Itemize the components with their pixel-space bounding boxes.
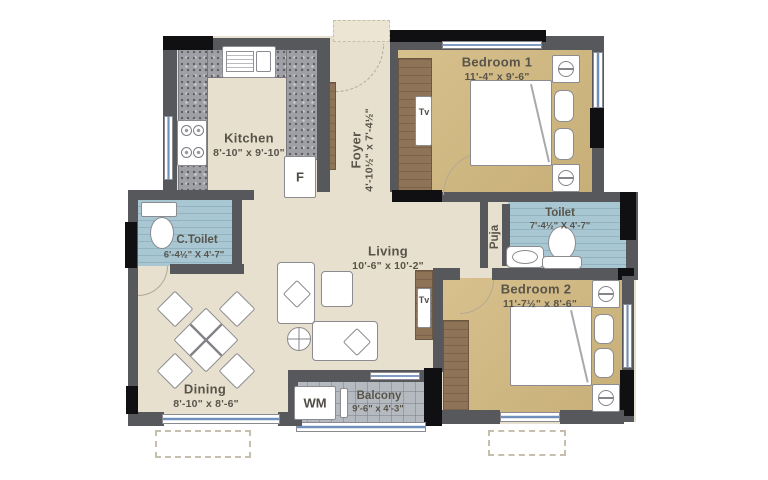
burner-icon: [181, 125, 192, 136]
lamp-icon: [598, 286, 614, 302]
balcony-door-leaf: [340, 388, 348, 418]
bedroom2-nightstand-bottom: [592, 384, 620, 412]
foyer-dims: 4'-10½" x 7'-4½": [364, 108, 376, 192]
dining-bottom-wall-left: [128, 412, 164, 426]
toilet-wc-base: [542, 256, 582, 269]
armchair: [321, 271, 353, 307]
living-bedroom2-wall: [433, 268, 443, 372]
kitchen-label: Kitchen: [224, 131, 274, 146]
kitchen-foyer-wall: [317, 50, 330, 192]
foyer-label-group: Foyer 4'-10½" x 7'-4½": [349, 108, 376, 192]
sofa-cushion: [343, 328, 371, 356]
kitchen-window: [164, 116, 173, 180]
bedroom1-nightstand-bottom: [552, 164, 580, 192]
puja-left-wall: [480, 202, 488, 268]
bedroom1-pillow: [554, 90, 574, 122]
bedroom1-dims: 11'-4" x 9'-6": [464, 71, 529, 83]
kitchen-stove: [177, 120, 207, 166]
bedroom1-pillow: [554, 128, 574, 160]
bedroom2-label: Bedroom 2: [501, 282, 572, 297]
lamp-icon: [558, 170, 574, 186]
ctoilet-shaft: [125, 222, 137, 268]
living-tv-label: Tv: [419, 295, 430, 305]
coffee-table: [287, 327, 311, 351]
bedroom2-pillow: [594, 314, 614, 344]
foyer-label: Foyer: [349, 108, 364, 192]
sink-drainboard: [226, 51, 254, 72]
sink-basin: [256, 51, 271, 72]
bedroom2-bottom-wall-right: [560, 410, 624, 424]
dining-window: [162, 414, 280, 424]
dining-dims: 8'-10" x 8'-6": [173, 398, 239, 410]
bedroom2-dims: 11'-7½" x 8'-6": [503, 298, 577, 310]
washing-machine-label: WM: [303, 396, 326, 411]
lamp-icon: [598, 390, 614, 406]
ctoilet-wc-bowl: [150, 217, 174, 249]
bedroom1-left-wall: [390, 50, 398, 192]
burner-icon: [193, 125, 204, 136]
floor-plan: Kitchen 8'-10" x 9'-10" Foyer 4'-10½" x …: [0, 0, 768, 480]
dining-left-black: [126, 386, 138, 414]
toilet-label: Toilet: [545, 207, 575, 219]
fridge-label: F: [296, 170, 304, 185]
toilet-dims: 7'-4½" X 4'-7": [530, 221, 591, 232]
toilet-shaft: [620, 192, 636, 240]
bedroom1-tv-label: Tv: [419, 107, 430, 117]
bedroom1-right-window: [593, 52, 603, 108]
living-dims: 10'-6" x 10'-2": [352, 260, 424, 272]
bedroom1-right-black: [590, 108, 604, 148]
balcony-shaft: [424, 368, 442, 426]
balcony-railing: [296, 422, 426, 432]
sofa-cushion: [283, 280, 311, 308]
kitchen-counter-right: [286, 48, 318, 160]
burner-icon: [193, 147, 204, 158]
bedroom1-label: Bedroom 1: [462, 55, 533, 70]
dining-label: Dining: [184, 382, 226, 397]
sofa-horizontal: [312, 321, 378, 361]
kitchen-sink: [222, 46, 276, 78]
lamp-icon: [558, 61, 574, 77]
bedroom2-top-wall-right: [492, 268, 638, 280]
bedroom2-pillow: [594, 348, 614, 378]
burner-icon: [181, 147, 192, 158]
bedroom2-bottom-window: [500, 412, 560, 422]
sofa-vertical: [277, 262, 315, 324]
kitchen-dims: 8'-10" x 9'-10": [213, 147, 285, 159]
bedroom1-nightstand-top: [552, 55, 580, 83]
balcony-label: Balcony: [357, 390, 402, 402]
bedroom2-right-window: [623, 304, 632, 368]
bedroom2-wardrobe: [443, 320, 469, 412]
entry-landing: [333, 20, 390, 42]
ctoilet-bottom-wall: [170, 264, 244, 274]
balcony-dims: 9'-6" x 4'-3": [352, 404, 404, 415]
bedroom2-bottom-wall-left: [438, 410, 500, 424]
washbasin-bowl: [512, 250, 538, 264]
bedroom2-nightstand-top: [592, 280, 620, 308]
corner-block-top-left: [163, 36, 213, 50]
puja-label: Puja: [489, 225, 501, 249]
ctoilet-right-wall: [232, 198, 242, 264]
bedroom1-tv: [415, 96, 432, 146]
toilet-washbasin: [506, 246, 544, 268]
living-label: Living: [368, 244, 408, 259]
ctoilet-dims: 6'-4½" X 4'-7": [164, 250, 225, 261]
balcony-door: [370, 372, 420, 380]
bedroom1-top-window: [442, 41, 542, 49]
bedroom2-projection: [488, 430, 566, 456]
dining-projection: [155, 430, 251, 458]
corridor-black-wall: [392, 190, 442, 202]
ctoilet-wc-tank: [141, 202, 177, 217]
living-tv: [417, 288, 431, 328]
ctoilet-label: C.Toilet: [176, 234, 217, 246]
